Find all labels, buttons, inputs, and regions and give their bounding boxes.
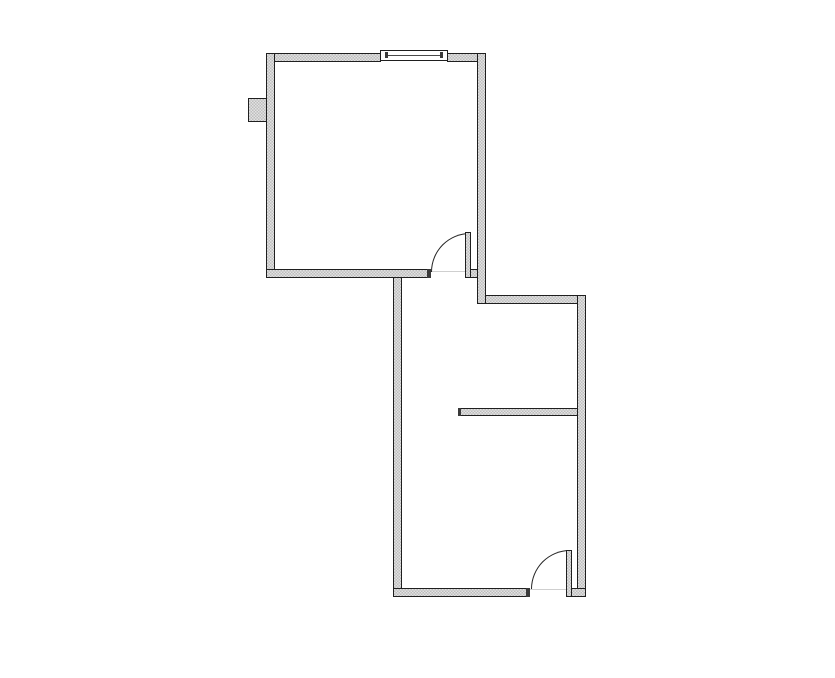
- window-center-line: [386, 55, 442, 56]
- floor-plan-canvas: [0, 0, 835, 678]
- room2-top-wall: [477, 295, 586, 304]
- room2-partition-wall: [458, 408, 579, 416]
- window-left-tick: [385, 52, 388, 58]
- partition-end-cap: [458, 408, 461, 416]
- room2-left-wall: [393, 269, 402, 597]
- room1-top-wall-left: [266, 53, 381, 62]
- door2-threshold: [530, 589, 567, 590]
- door2-leaf: [566, 550, 572, 597]
- room1-floor: [275, 62, 477, 269]
- room1-right-wall: [477, 53, 486, 304]
- room2-right-wall: [577, 295, 586, 597]
- room1-bottom-wall: [266, 269, 431, 278]
- door1-leaf: [465, 232, 471, 278]
- room2-bottom-wall-left: [393, 588, 530, 597]
- room2-floor: [402, 278, 577, 588]
- room1-left-wall: [266, 53, 275, 278]
- window-right-tick: [440, 52, 443, 58]
